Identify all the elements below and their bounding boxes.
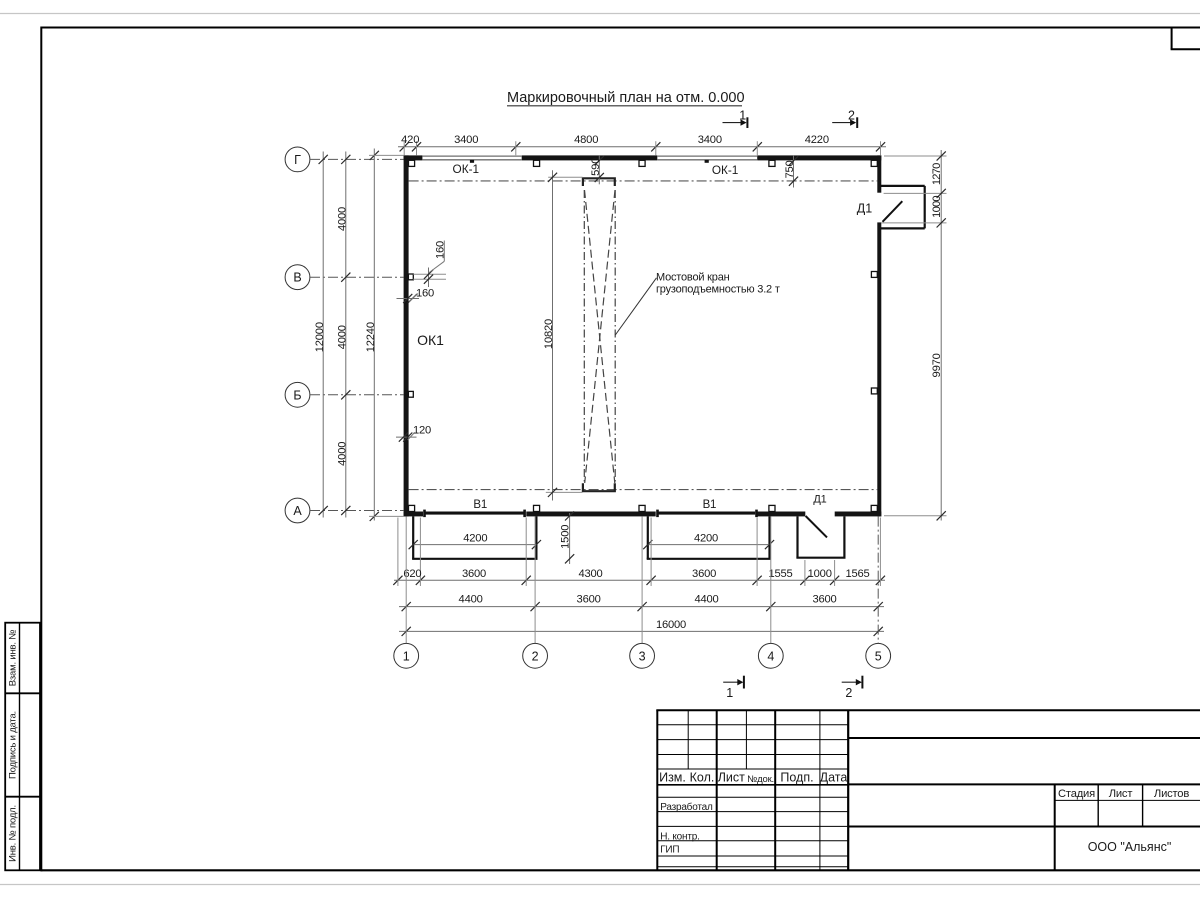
svg-text:2: 2 bbox=[532, 649, 539, 663]
svg-text:А: А bbox=[293, 504, 302, 518]
svg-text:1000: 1000 bbox=[808, 568, 832, 580]
svg-text:4200: 4200 bbox=[694, 532, 718, 544]
svg-text:4000: 4000 bbox=[336, 207, 348, 231]
svg-text:ООО "Альянс": ООО "Альянс" bbox=[1088, 840, 1172, 854]
svg-text:Д1: Д1 bbox=[813, 494, 826, 506]
svg-text:3400: 3400 bbox=[698, 134, 722, 146]
svg-text:1270: 1270 bbox=[931, 163, 943, 185]
svg-text:Лист: Лист bbox=[718, 771, 745, 785]
svg-text:1500: 1500 bbox=[559, 525, 571, 549]
svg-text:Н. контр.: Н. контр. bbox=[660, 831, 699, 842]
svg-text:4: 4 bbox=[767, 649, 774, 663]
svg-text:В1: В1 bbox=[473, 499, 487, 511]
svg-text:3400: 3400 bbox=[454, 134, 478, 146]
svg-text:5: 5 bbox=[875, 649, 882, 663]
svg-text:Маркировочный план на отм. 0.0: Маркировочный план на отм. 0.000 bbox=[507, 90, 745, 106]
svg-text:Подпись и дата.: Подпись и дата. bbox=[8, 711, 19, 779]
svg-text:2: 2 bbox=[845, 686, 852, 700]
svg-text:1: 1 bbox=[726, 686, 733, 700]
svg-text:4400: 4400 bbox=[694, 594, 718, 606]
svg-text:4300: 4300 bbox=[578, 568, 602, 580]
svg-text:Инв. № подл.: Инв. № подл. bbox=[8, 805, 19, 862]
svg-text:10820: 10820 bbox=[543, 319, 555, 349]
svg-text:160: 160 bbox=[435, 241, 447, 259]
svg-text:В1: В1 bbox=[703, 499, 717, 511]
svg-text:1000: 1000 bbox=[931, 196, 943, 218]
svg-text:Дата: Дата bbox=[820, 771, 848, 785]
svg-text:ГИП: ГИП bbox=[660, 845, 679, 856]
svg-text:Г: Г bbox=[294, 153, 301, 167]
svg-text:12240: 12240 bbox=[365, 322, 377, 352]
svg-text:Кол.: Кол. bbox=[690, 771, 715, 785]
svg-text:Взам. инв. №: Взам. инв. № bbox=[8, 630, 19, 686]
svg-text:Стадия: Стадия bbox=[1058, 788, 1095, 800]
svg-text:1565: 1565 bbox=[845, 568, 869, 580]
svg-text:590: 590 bbox=[590, 158, 602, 176]
svg-text:4200: 4200 bbox=[463, 532, 487, 544]
svg-text:12000: 12000 bbox=[314, 322, 326, 352]
svg-text:Листов: Листов bbox=[1154, 788, 1189, 800]
svg-text:3600: 3600 bbox=[462, 568, 486, 580]
svg-text:4400: 4400 bbox=[459, 594, 483, 606]
svg-text:Д1: Д1 bbox=[857, 202, 872, 216]
svg-text:Лист: Лист bbox=[1109, 788, 1133, 800]
svg-text:3600: 3600 bbox=[577, 594, 601, 606]
svg-text:160: 160 bbox=[416, 287, 434, 299]
svg-text:ОК1: ОК1 bbox=[417, 332, 444, 348]
svg-text:420: 420 bbox=[401, 134, 419, 146]
svg-text:Изм.: Изм. bbox=[659, 771, 686, 785]
svg-text:ОК-1: ОК-1 bbox=[453, 162, 480, 176]
svg-text:ОК-1: ОК-1 bbox=[712, 163, 739, 177]
svg-text:1: 1 bbox=[739, 108, 746, 122]
svg-text:4000: 4000 bbox=[336, 442, 348, 466]
svg-text:грузоподъемностью 3.2 т: грузоподъемностью 3.2 т bbox=[656, 284, 780, 296]
svg-text:120: 120 bbox=[413, 424, 431, 436]
svg-text:Мостовой кран: Мостовой кран bbox=[656, 272, 730, 284]
svg-text:4800: 4800 bbox=[574, 134, 598, 146]
svg-text:4000: 4000 bbox=[336, 325, 348, 349]
svg-text:Б: Б bbox=[293, 388, 301, 402]
svg-text:Подп.: Подп. bbox=[780, 771, 813, 785]
svg-text:1555: 1555 bbox=[768, 568, 792, 580]
svg-text:3: 3 bbox=[639, 649, 646, 663]
svg-text:9970: 9970 bbox=[931, 353, 943, 377]
svg-text:2: 2 bbox=[848, 108, 855, 122]
svg-text:3600: 3600 bbox=[692, 568, 716, 580]
svg-text:3600: 3600 bbox=[812, 594, 836, 606]
svg-text:1: 1 bbox=[403, 649, 410, 663]
svg-text:Разработал: Разработал bbox=[660, 801, 713, 813]
svg-text:750: 750 bbox=[784, 160, 796, 178]
svg-text:4220: 4220 bbox=[805, 134, 829, 146]
svg-text:№док.: №док. bbox=[747, 774, 774, 785]
svg-text:16000: 16000 bbox=[656, 619, 686, 631]
svg-text:В: В bbox=[293, 271, 301, 285]
